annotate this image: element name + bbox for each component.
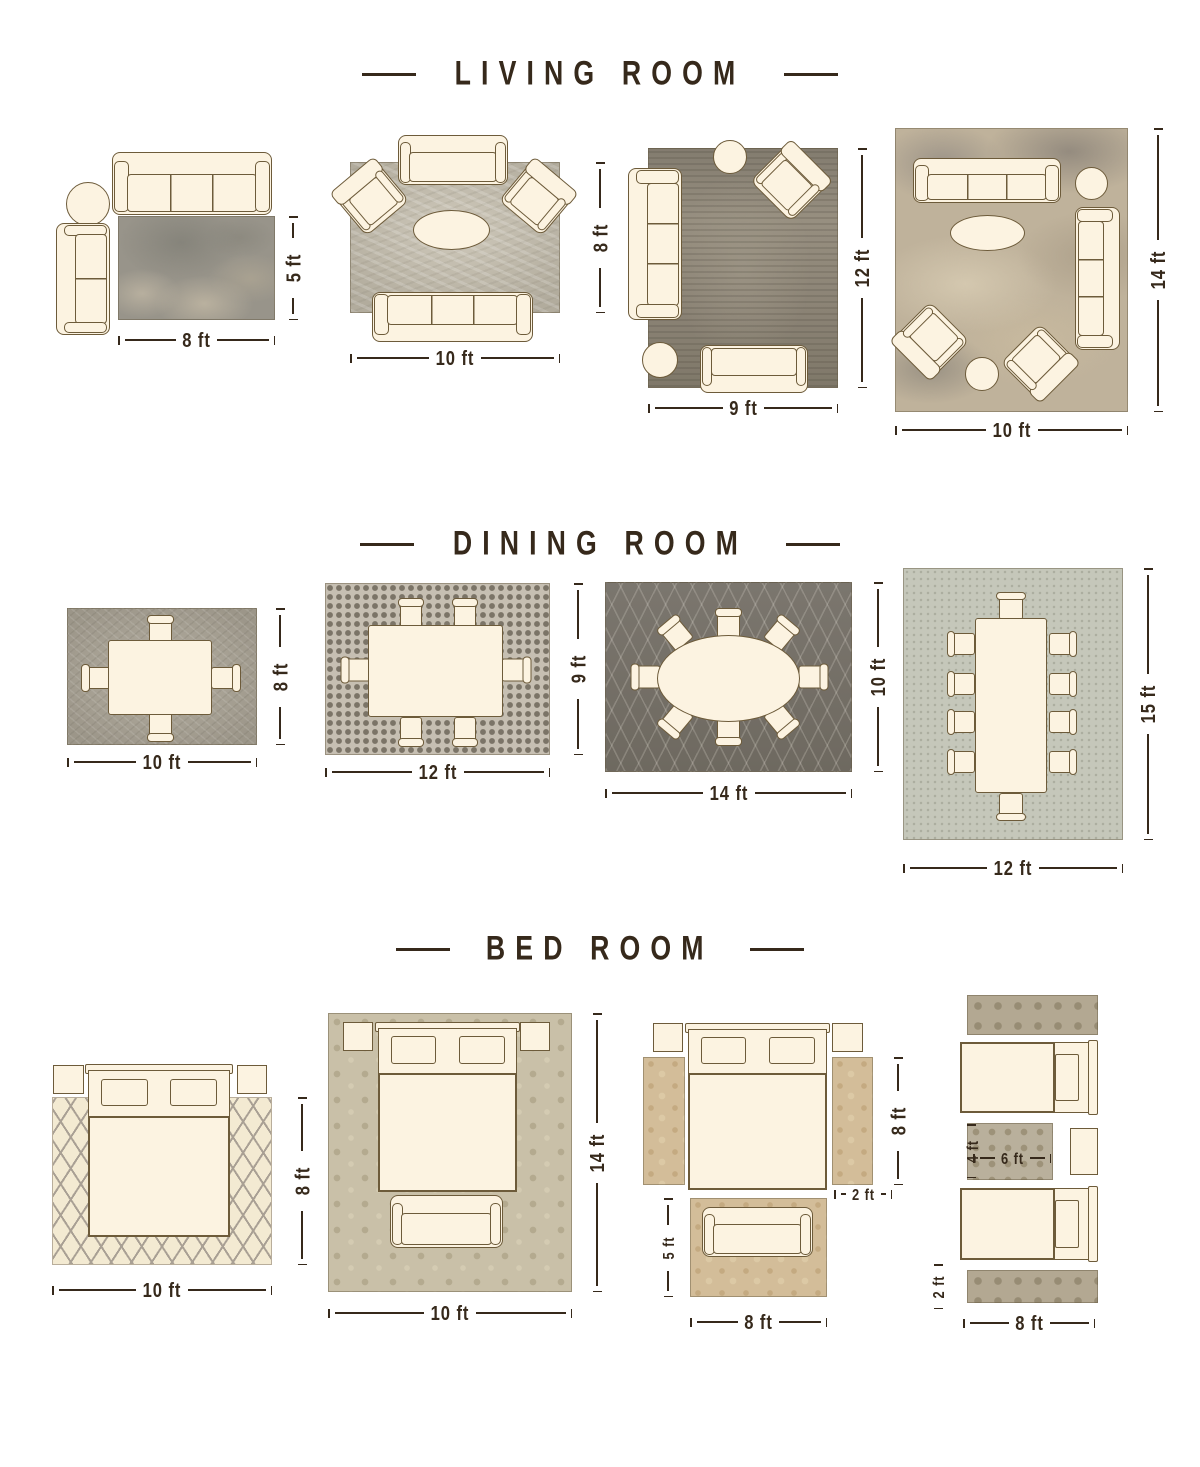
dining-chair-icon — [147, 712, 174, 742]
living-room-title-row: LIVING ROOM — [0, 58, 1200, 91]
dimension-line — [858, 387, 867, 389]
dimension-line — [664, 1296, 673, 1298]
dimension-label: 6 ft — [1001, 1149, 1024, 1167]
dimension-line — [599, 169, 601, 208]
dimension-line — [861, 155, 863, 239]
width-dimension: 12 ft — [903, 858, 1123, 878]
dining-chair-icon — [1049, 631, 1077, 657]
oval-dining-table-icon — [657, 635, 800, 722]
dimension-label: 5 ft — [647, 1236, 688, 1259]
dimension-line — [1154, 128, 1163, 130]
dimension-line — [571, 1309, 573, 1318]
layout-bed-twin-runners: 4 ft 6 ft 2 ft 8 ft — [925, 988, 1140, 1338]
dimension-label: 14 ft — [1129, 251, 1187, 290]
height-dimension: 8 ft — [292, 1097, 312, 1265]
dimension-line — [274, 336, 276, 345]
dimension-line — [593, 1013, 602, 1015]
dimension-line — [1144, 839, 1153, 841]
bed-icon — [688, 1023, 827, 1190]
pillow — [769, 1037, 815, 1064]
sofa-cushions — [711, 348, 798, 377]
height-dimension: 14 ft — [1148, 128, 1168, 412]
dimension-line — [596, 312, 605, 314]
dimension-line — [755, 792, 846, 794]
dimension-line — [891, 1190, 893, 1199]
dimension-line — [667, 1205, 669, 1225]
dimension-line — [188, 1289, 266, 1291]
dimension-line — [1147, 734, 1149, 834]
dimension-line — [897, 1064, 899, 1092]
dimension-line — [1039, 867, 1117, 869]
dimension-line — [292, 298, 294, 314]
dimension-line — [877, 589, 879, 648]
dimension-line — [476, 1312, 566, 1314]
height-dimension: 14 ft — [587, 1013, 607, 1292]
dimension-line — [217, 339, 269, 341]
dimension-line — [279, 615, 281, 647]
dimension-label: 8 ft — [273, 1167, 331, 1196]
dimension-line — [59, 1289, 137, 1291]
section-title: BED ROOM — [486, 930, 714, 969]
dimension-line — [655, 407, 723, 409]
sofa-cushions — [647, 183, 679, 306]
height-dimension: 9 ft — [568, 583, 588, 755]
loveseat-icon — [398, 135, 508, 185]
dimension-line — [697, 1321, 739, 1323]
dimension-line — [970, 1322, 1009, 1324]
dining-chair-icon — [947, 709, 975, 735]
dimension-line — [980, 1157, 995, 1159]
sofa-cushions — [1078, 221, 1105, 337]
dimension-line — [834, 1190, 836, 1199]
dimension-line — [1154, 411, 1163, 413]
title-dash — [750, 948, 804, 951]
nightstand-icon — [653, 1023, 683, 1052]
dimension-label: 12 ft — [994, 856, 1033, 880]
dimension-line — [910, 867, 988, 869]
bench-icon — [390, 1195, 503, 1248]
dimension-line — [549, 768, 551, 777]
dimension-label: 10 ft — [992, 418, 1031, 442]
layout-dining-12x15: 15 ft 12 ft — [895, 562, 1170, 882]
title-dash — [396, 948, 450, 951]
pillow — [170, 1079, 217, 1107]
width-dimension: 9 ft — [648, 398, 838, 418]
dimension-line — [596, 1183, 598, 1286]
dining-chair-icon — [1049, 749, 1077, 775]
title-dash — [362, 73, 416, 76]
dimension-line — [612, 792, 703, 794]
nightstand-icon — [520, 1022, 550, 1051]
sofa-cushions — [127, 174, 257, 212]
height-dimension: 10 ft — [868, 582, 888, 772]
dimension-line — [1147, 575, 1149, 675]
sofa-icon — [372, 292, 533, 342]
dining-chair-icon — [341, 657, 371, 684]
dining-chair-icon — [502, 657, 532, 684]
dimension-label: 8 ft — [1015, 1311, 1044, 1335]
pillow — [391, 1036, 437, 1063]
dimension-line — [292, 223, 294, 239]
dimension-label: 2 ft — [925, 1275, 950, 1298]
dimension-line — [874, 582, 883, 584]
dimension-line — [779, 1321, 821, 1323]
dimension-line — [1157, 135, 1159, 241]
dimension-line — [574, 754, 583, 756]
dimension-line — [903, 864, 905, 873]
dimension-line — [276, 744, 285, 746]
dimension-line — [934, 1264, 943, 1266]
dimension-label: 8 ft — [251, 662, 309, 691]
dimension-line — [667, 1271, 669, 1291]
headboard — [1088, 1186, 1098, 1262]
dimension-line — [837, 404, 839, 413]
dimension-line — [298, 1264, 307, 1266]
dimension-line — [764, 407, 832, 409]
dimension-line — [301, 1104, 303, 1152]
dimension-line — [256, 758, 258, 767]
section-title: DINING ROOM — [452, 525, 747, 564]
dining-chair-icon — [452, 598, 478, 628]
layout-dining-14x10: 10 ft 14 ft — [598, 578, 883, 803]
nightstand-icon — [53, 1065, 84, 1094]
pillow — [701, 1037, 747, 1064]
dimension-line — [881, 1193, 886, 1195]
runner-width-dimension: 2 ft — [834, 1186, 892, 1202]
layout-living-10x14: 14 ft 10 ft — [888, 118, 1173, 433]
round-side-table-icon — [713, 140, 747, 174]
sofa-icon — [628, 168, 682, 320]
runner-height-dimension: 2 ft — [930, 1264, 946, 1309]
sofa-icon — [1075, 207, 1120, 350]
dimension-line — [877, 707, 879, 766]
runner-rug — [967, 995, 1098, 1035]
dimension-line — [276, 608, 285, 610]
dimension-line — [599, 268, 601, 307]
dining-chair-icon — [996, 793, 1026, 821]
dimension-line — [118, 336, 120, 345]
blanket — [88, 1116, 230, 1237]
dimension-line — [325, 768, 327, 777]
width-dimension: 10 ft — [52, 1280, 272, 1300]
blanket — [960, 1042, 1055, 1113]
dimension-line — [1038, 429, 1122, 431]
sofa-cushions — [387, 295, 517, 325]
round-side-table-icon — [642, 342, 678, 378]
layout-living-10x8: 8 ft 10 ft — [338, 125, 608, 375]
dimension-line — [577, 699, 579, 749]
dimension-line — [1050, 1322, 1089, 1324]
dining-chair-icon — [81, 664, 111, 692]
dimension-line — [605, 789, 607, 798]
blanket — [688, 1073, 827, 1190]
dimension-line — [298, 1097, 307, 1099]
dimension-label: 14 ft — [568, 1133, 626, 1172]
bed-icon — [378, 1022, 517, 1192]
nightstand-icon — [1070, 1128, 1098, 1175]
dining-table-icon — [108, 640, 212, 715]
loveseat-icon — [700, 345, 808, 393]
dimension-line — [577, 590, 579, 640]
dimension-line — [574, 583, 583, 585]
dining-room-title-row: DINING ROOM — [0, 528, 1200, 561]
dimension-label: 15 ft — [1119, 685, 1177, 724]
layout-dining-10x8: 8 ft 10 ft — [58, 595, 308, 780]
dimension-line — [1157, 300, 1159, 406]
dimension-line — [559, 354, 561, 363]
dimension-line — [841, 1193, 846, 1195]
layout-living-9x12: 12 ft 9 ft — [620, 133, 880, 423]
dimension-line — [1127, 426, 1129, 435]
dimension-label: 10 ft — [436, 346, 475, 370]
dimension-line — [289, 319, 298, 321]
layout-living-8x5: 5 ft 8 ft — [40, 145, 305, 355]
runner-length-dimension: 8 ft — [963, 1313, 1095, 1333]
blanket — [960, 1188, 1055, 1260]
oval-coffee-table-icon — [413, 210, 490, 250]
dimension-line — [963, 1319, 965, 1328]
round-side-table-icon — [66, 182, 110, 226]
dimension-line — [596, 162, 605, 164]
dimension-label: 14 ft — [709, 781, 748, 805]
height-dimension: 15 ft — [1138, 568, 1158, 840]
round-side-table-icon — [1075, 167, 1108, 200]
title-dash — [786, 543, 840, 546]
dimension-line — [188, 761, 251, 763]
dimension-line — [335, 1312, 425, 1314]
dimension-label: 9 ft — [729, 396, 758, 420]
layout-bed-10x8: 8 ft 10 ft — [38, 1058, 308, 1303]
foot-rug-width-dimension: 8 ft — [690, 1312, 827, 1332]
dining-chair-icon — [211, 664, 241, 692]
width-dimension: 10 ft — [350, 348, 560, 368]
dimension-line — [125, 339, 177, 341]
dimension-line — [593, 1291, 602, 1293]
dimension-label: 10 ft — [143, 750, 182, 774]
pillow — [1055, 1200, 1078, 1248]
pillow — [459, 1036, 505, 1063]
dining-chair-icon — [996, 592, 1026, 620]
dining-chair-icon — [398, 717, 424, 747]
dimension-line — [934, 1308, 943, 1310]
dimension-line — [690, 1318, 692, 1327]
loveseat-icon — [56, 223, 110, 335]
dimension-line — [861, 298, 863, 382]
runner-length-dimension: 8 ft — [888, 1057, 908, 1185]
runner-rug — [967, 1270, 1098, 1303]
dimension-line — [67, 758, 69, 767]
nightstand-icon — [832, 1023, 863, 1052]
layout-dining-12x9: 9 ft 12 ft — [318, 578, 583, 788]
dimension-label: 12 ft — [418, 760, 457, 784]
dimension-line — [289, 216, 298, 218]
dining-chair-icon — [1049, 671, 1077, 697]
dimension-label: 8 ft — [744, 1310, 773, 1334]
height-dimension: 5 ft — [283, 216, 303, 320]
dimension-line — [897, 1151, 899, 1179]
round-side-table-icon — [965, 357, 999, 391]
dimension-line — [332, 771, 412, 773]
width-dimension: 14 ft — [605, 783, 852, 803]
dimension-line — [874, 771, 883, 773]
dimension-label: 10 ft — [431, 1301, 470, 1325]
dimension-line — [648, 404, 650, 413]
width-dimension: 10 ft — [67, 752, 257, 772]
dimension-line — [279, 707, 281, 739]
dimension-line — [350, 354, 352, 363]
width-dimension: 12 ft — [325, 762, 550, 782]
height-dimension: 8 ft — [270, 608, 290, 745]
title-dash — [784, 73, 838, 76]
dimension-line — [357, 357, 430, 359]
title-dash — [360, 543, 414, 546]
dimension-line — [464, 771, 544, 773]
width-dimension: 8 ft — [118, 330, 275, 350]
dining-chair-icon — [452, 717, 478, 747]
dimension-label: 8 ft — [182, 328, 211, 352]
dimension-line — [52, 1286, 54, 1295]
dimension-line — [894, 1057, 903, 1059]
dimension-line — [1030, 1157, 1045, 1159]
dimension-line — [973, 1154, 975, 1163]
dimension-line — [967, 1124, 976, 1126]
dimension-line — [328, 1309, 330, 1318]
height-dimension: 12 ft — [852, 148, 872, 388]
dimension-line — [301, 1211, 303, 1259]
dimension-line — [1094, 1319, 1096, 1328]
sofa-icon — [112, 152, 272, 215]
dining-chair-icon — [947, 749, 975, 775]
dimension-line — [826, 1318, 828, 1327]
sofa-cushions — [401, 1213, 492, 1245]
dimension-line — [271, 1286, 273, 1295]
sofa-cushions — [75, 234, 107, 324]
sofa-cushions — [409, 152, 498, 182]
dining-chair-icon — [799, 664, 829, 691]
dimension-line — [967, 1177, 976, 1179]
twin-bed-icon — [960, 1042, 1098, 1113]
dimension-label: 5 ft — [264, 254, 322, 283]
dimension-line — [851, 789, 853, 798]
height-dimension: 8 ft — [590, 162, 610, 313]
dining-chair-icon — [947, 671, 975, 697]
rug — [118, 216, 275, 320]
dimension-line — [481, 357, 554, 359]
dimension-label: 12 ft — [833, 249, 891, 288]
dining-chair-icon — [1049, 709, 1077, 735]
center-rug-width-dimension: 6 ft — [973, 1150, 1051, 1166]
dining-chair-icon — [398, 598, 424, 628]
layout-bed-runners: 8 ft 2 ft 5 ft 8 ft — [638, 1018, 903, 1330]
layout-bed-10x14: 14 ft 10 ft — [326, 1008, 606, 1323]
dining-chair-icon — [715, 608, 742, 638]
dining-table-icon — [975, 618, 1047, 793]
dimension-line — [1050, 1154, 1052, 1163]
oval-coffee-table-icon — [950, 215, 1025, 251]
runner-rug — [643, 1057, 685, 1185]
dining-chair-icon — [631, 664, 661, 691]
runner-rug — [832, 1057, 873, 1185]
pillow — [1055, 1054, 1078, 1101]
loveseat-icon — [702, 1207, 813, 1257]
dimension-line — [664, 1198, 673, 1200]
dimension-line — [858, 148, 867, 150]
nightstand-icon — [343, 1022, 373, 1051]
dimension-line — [895, 426, 897, 435]
dining-chair-icon — [947, 631, 975, 657]
foot-rug-height-dimension: 5 ft — [660, 1198, 676, 1297]
sofa-cushions — [927, 174, 1047, 201]
nightstand-icon — [237, 1065, 267, 1094]
dimension-line — [1122, 864, 1124, 873]
dimension-line — [894, 1184, 903, 1186]
pillow — [101, 1079, 148, 1107]
blanket — [378, 1073, 517, 1192]
dimension-line — [902, 429, 986, 431]
dimension-label: 2 ft — [852, 1185, 875, 1203]
rug-size-guide: LIVING ROOM 5 ft 8 ft 8 ft — [0, 0, 1200, 1467]
dining-table-icon — [368, 625, 503, 717]
dimension-label: 10 ft — [143, 1278, 182, 1302]
sofa-icon — [913, 158, 1061, 203]
bed-room-title-row: BED ROOM — [0, 933, 1200, 966]
twin-bed-icon — [960, 1188, 1098, 1260]
section-title: LIVING ROOM — [455, 55, 746, 94]
dimension-line — [596, 1020, 598, 1123]
headboard — [1088, 1040, 1098, 1115]
width-dimension: 10 ft — [328, 1303, 572, 1323]
dimension-label: 8 ft — [869, 1107, 927, 1136]
sofa-cushions — [713, 1224, 802, 1254]
bed-icon — [88, 1064, 230, 1237]
dimension-line — [1144, 568, 1153, 570]
width-dimension: 10 ft — [895, 420, 1128, 440]
dimension-line — [74, 761, 137, 763]
